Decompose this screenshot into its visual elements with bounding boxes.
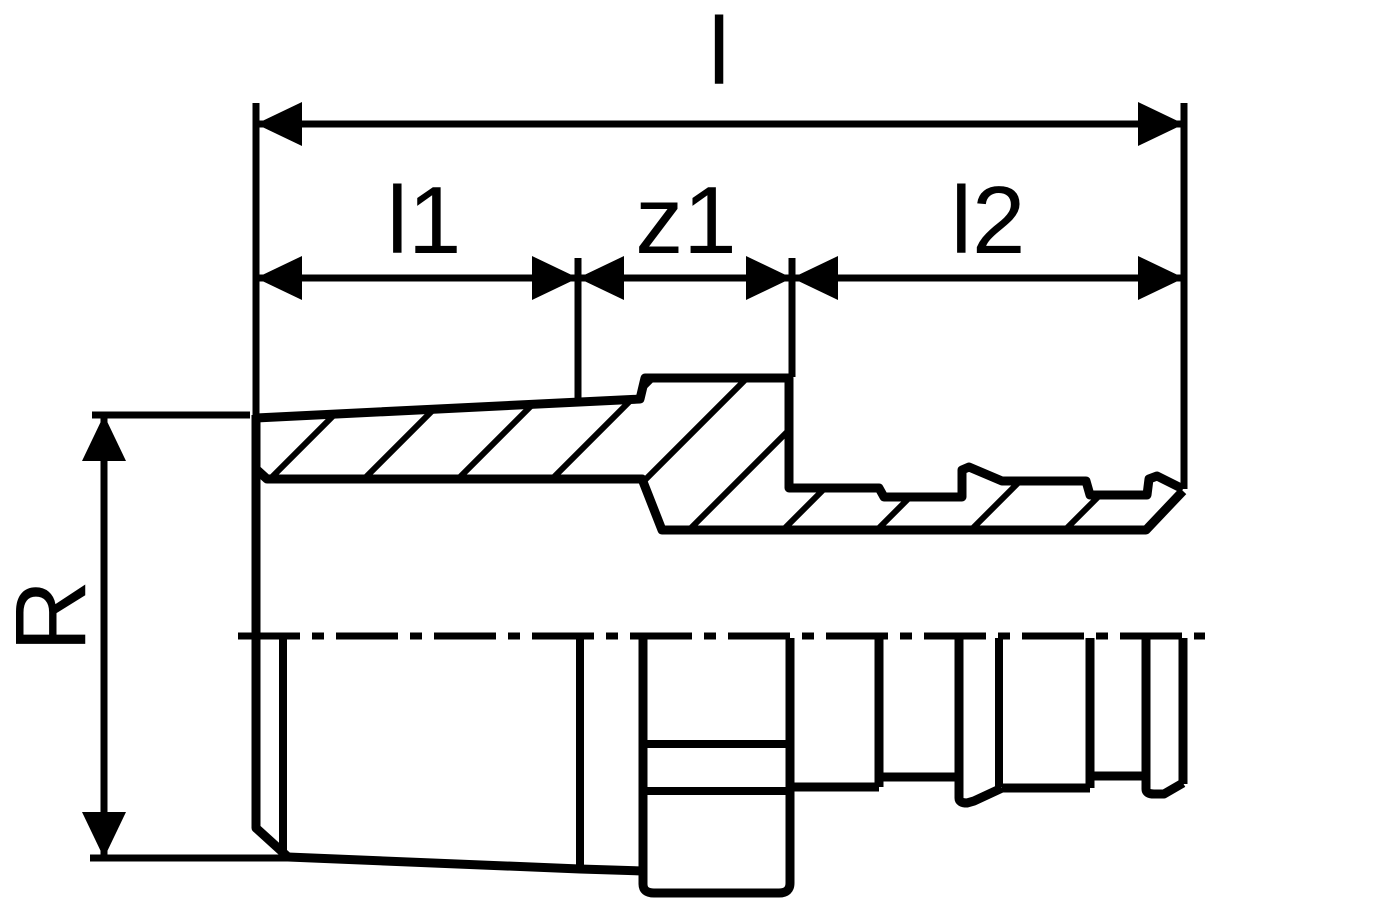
drawing-background: [0, 0, 1400, 900]
dimension-label-z1: z1: [635, 167, 736, 274]
technical-drawing-page: l l1 z1 l2 R: [0, 0, 1400, 900]
pipe-fitting-dimension-drawing: l l1 z1 l2 R: [0, 0, 1400, 900]
dimension-label-l1: l1: [387, 167, 462, 274]
dimension-label-l: l: [708, 0, 729, 105]
dimension-label-l2: l2: [951, 167, 1026, 274]
dimension-label-r: R: [0, 580, 107, 652]
